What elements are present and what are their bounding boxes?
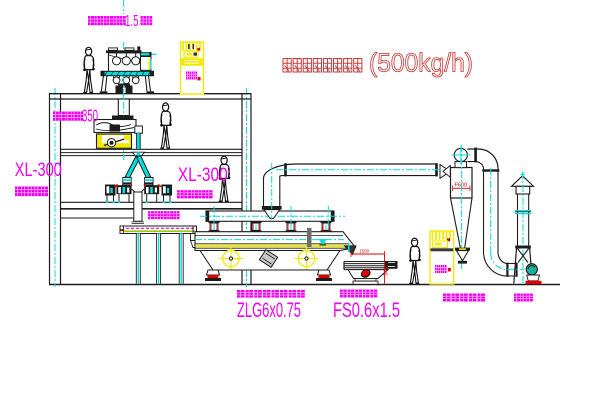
svg-text:ZLG6x0.75: ZLG6x0.75 — [237, 298, 301, 322]
svg-text:FS0.6x1.5: FS0.6x1.5 — [333, 298, 400, 322]
svg-text:350: 350 — [82, 106, 98, 126]
svg-text:XL-300: XL-300 — [178, 164, 228, 186]
svg-text:345: 345 — [384, 267, 390, 276]
svg-text:1500: 1500 — [360, 249, 370, 255]
svg-text:F600: F600 — [455, 183, 468, 189]
svg-text:XL-300: XL-300 — [15, 159, 62, 181]
svg-text:(500kg/h): (500kg/h) — [369, 48, 473, 78]
svg-text:1.5: 1.5 — [125, 13, 139, 30]
